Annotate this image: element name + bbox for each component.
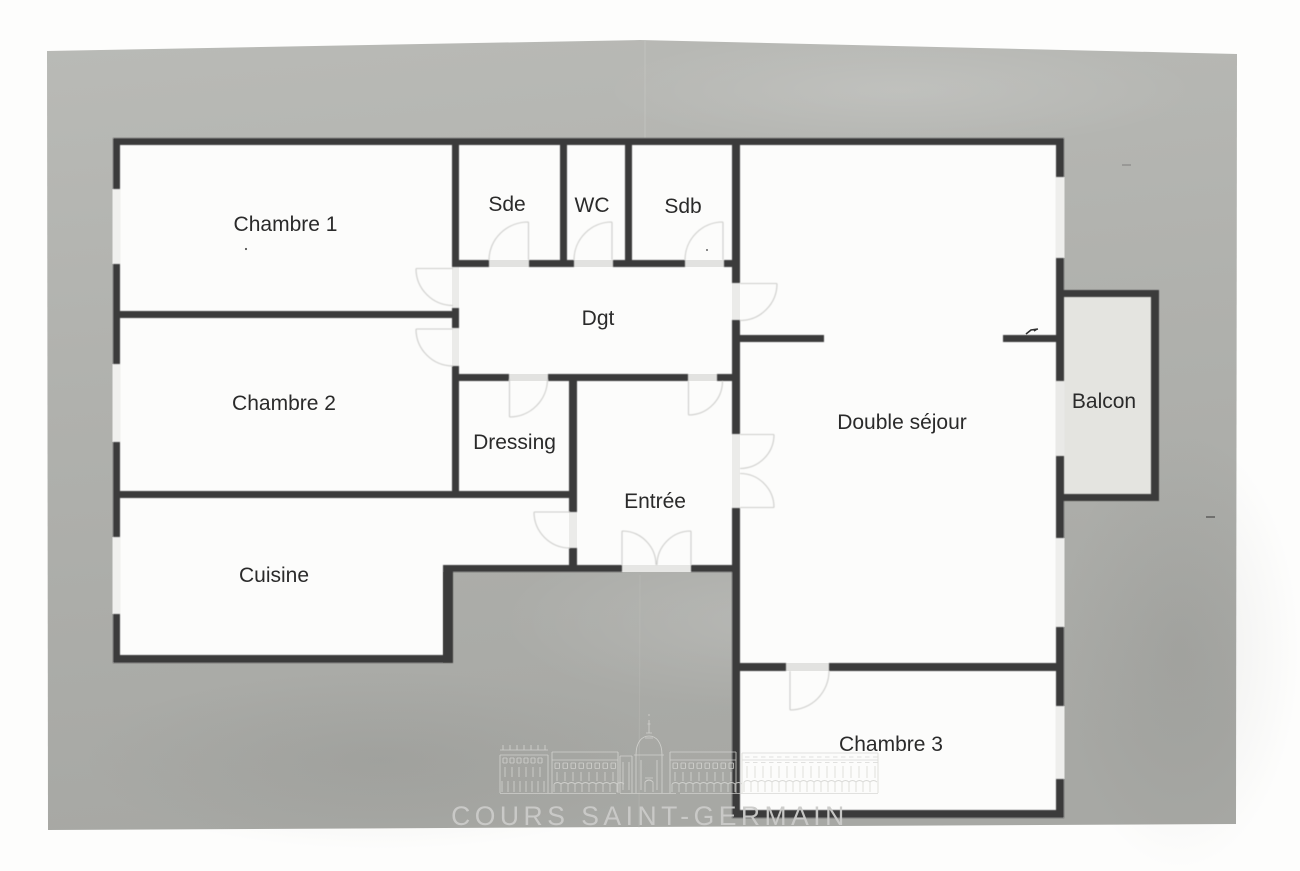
- svg-text:COURS SAINT-GERMAIN: COURS SAINT-GERMAIN: [451, 801, 849, 831]
- svg-text:Entrée: Entrée: [624, 490, 686, 513]
- svg-text:Dressing: Dressing: [473, 431, 556, 454]
- svg-text:Chambre 3: Chambre 3: [839, 733, 943, 756]
- svg-text:Sdb: Sdb: [664, 195, 701, 218]
- svg-text:Dgt: Dgt: [582, 307, 615, 330]
- svg-text:WC: WC: [575, 194, 610, 217]
- svg-text:Cuisine: Cuisine: [239, 564, 309, 587]
- svg-text:Chambre 2: Chambre 2: [232, 392, 336, 415]
- svg-text:Balcon: Balcon: [1072, 390, 1136, 413]
- svg-text:Chambre 1: Chambre 1: [234, 213, 338, 236]
- svg-text:Double séjour: Double séjour: [837, 411, 967, 434]
- svg-text:Sde: Sde: [488, 193, 525, 216]
